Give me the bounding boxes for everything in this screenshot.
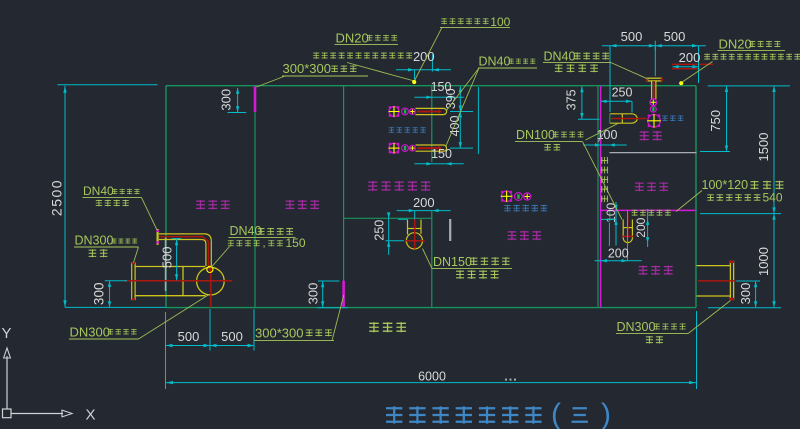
svg-text:DN20: DN20 (336, 31, 369, 46)
svg-text:(: ( (551, 398, 561, 429)
svg-text:500: 500 (160, 247, 175, 269)
svg-text:X: X (85, 407, 95, 424)
svg-text:400: 400 (448, 116, 462, 137)
svg-text:300: 300 (219, 89, 234, 111)
svg-text:,: , (263, 238, 266, 250)
svg-text:DN150: DN150 (433, 255, 472, 269)
svg-text:DN300: DN300 (70, 325, 110, 340)
svg-text:500: 500 (664, 29, 686, 44)
svg-text:DN40: DN40 (479, 55, 511, 69)
svg-text:1000: 1000 (756, 247, 771, 276)
svg-text:500: 500 (621, 29, 643, 44)
svg-text:DN300: DN300 (617, 320, 656, 334)
svg-text:300: 300 (92, 283, 107, 306)
svg-text:300*300: 300*300 (255, 326, 303, 341)
svg-text:200: 200 (608, 247, 629, 261)
svg-text:DN20: DN20 (719, 37, 752, 52)
svg-text:750: 750 (708, 110, 723, 132)
svg-text:250: 250 (612, 85, 633, 99)
svg-text:Y: Y (1, 325, 11, 342)
svg-text:2500: 2500 (49, 179, 65, 216)
svg-text:540: 540 (763, 191, 783, 205)
svg-text:1500: 1500 (756, 133, 771, 162)
svg-text:150: 150 (431, 147, 452, 161)
svg-text:DN40: DN40 (230, 224, 262, 238)
svg-text:500: 500 (178, 329, 200, 344)
svg-text:DN40: DN40 (544, 50, 576, 64)
svg-text:375: 375 (565, 89, 579, 110)
svg-text:300*300: 300*300 (283, 61, 331, 76)
svg-text:150: 150 (286, 236, 306, 250)
svg-text:200: 200 (413, 195, 435, 210)
svg-text:200: 200 (679, 50, 701, 65)
svg-text:250: 250 (373, 220, 387, 241)
svg-text:100*120: 100*120 (702, 178, 749, 192)
svg-text:500: 500 (221, 329, 243, 344)
svg-text:100: 100 (490, 15, 510, 29)
svg-text:300: 300 (738, 283, 753, 305)
svg-text:200: 200 (634, 217, 648, 237)
svg-text:300: 300 (305, 283, 320, 305)
svg-text:DN300: DN300 (75, 234, 114, 248)
svg-text:DN40: DN40 (83, 184, 114, 198)
svg-text:DN100: DN100 (516, 128, 555, 142)
svg-text:6000: 6000 (418, 369, 446, 383)
svg-text:): ) (601, 398, 611, 429)
